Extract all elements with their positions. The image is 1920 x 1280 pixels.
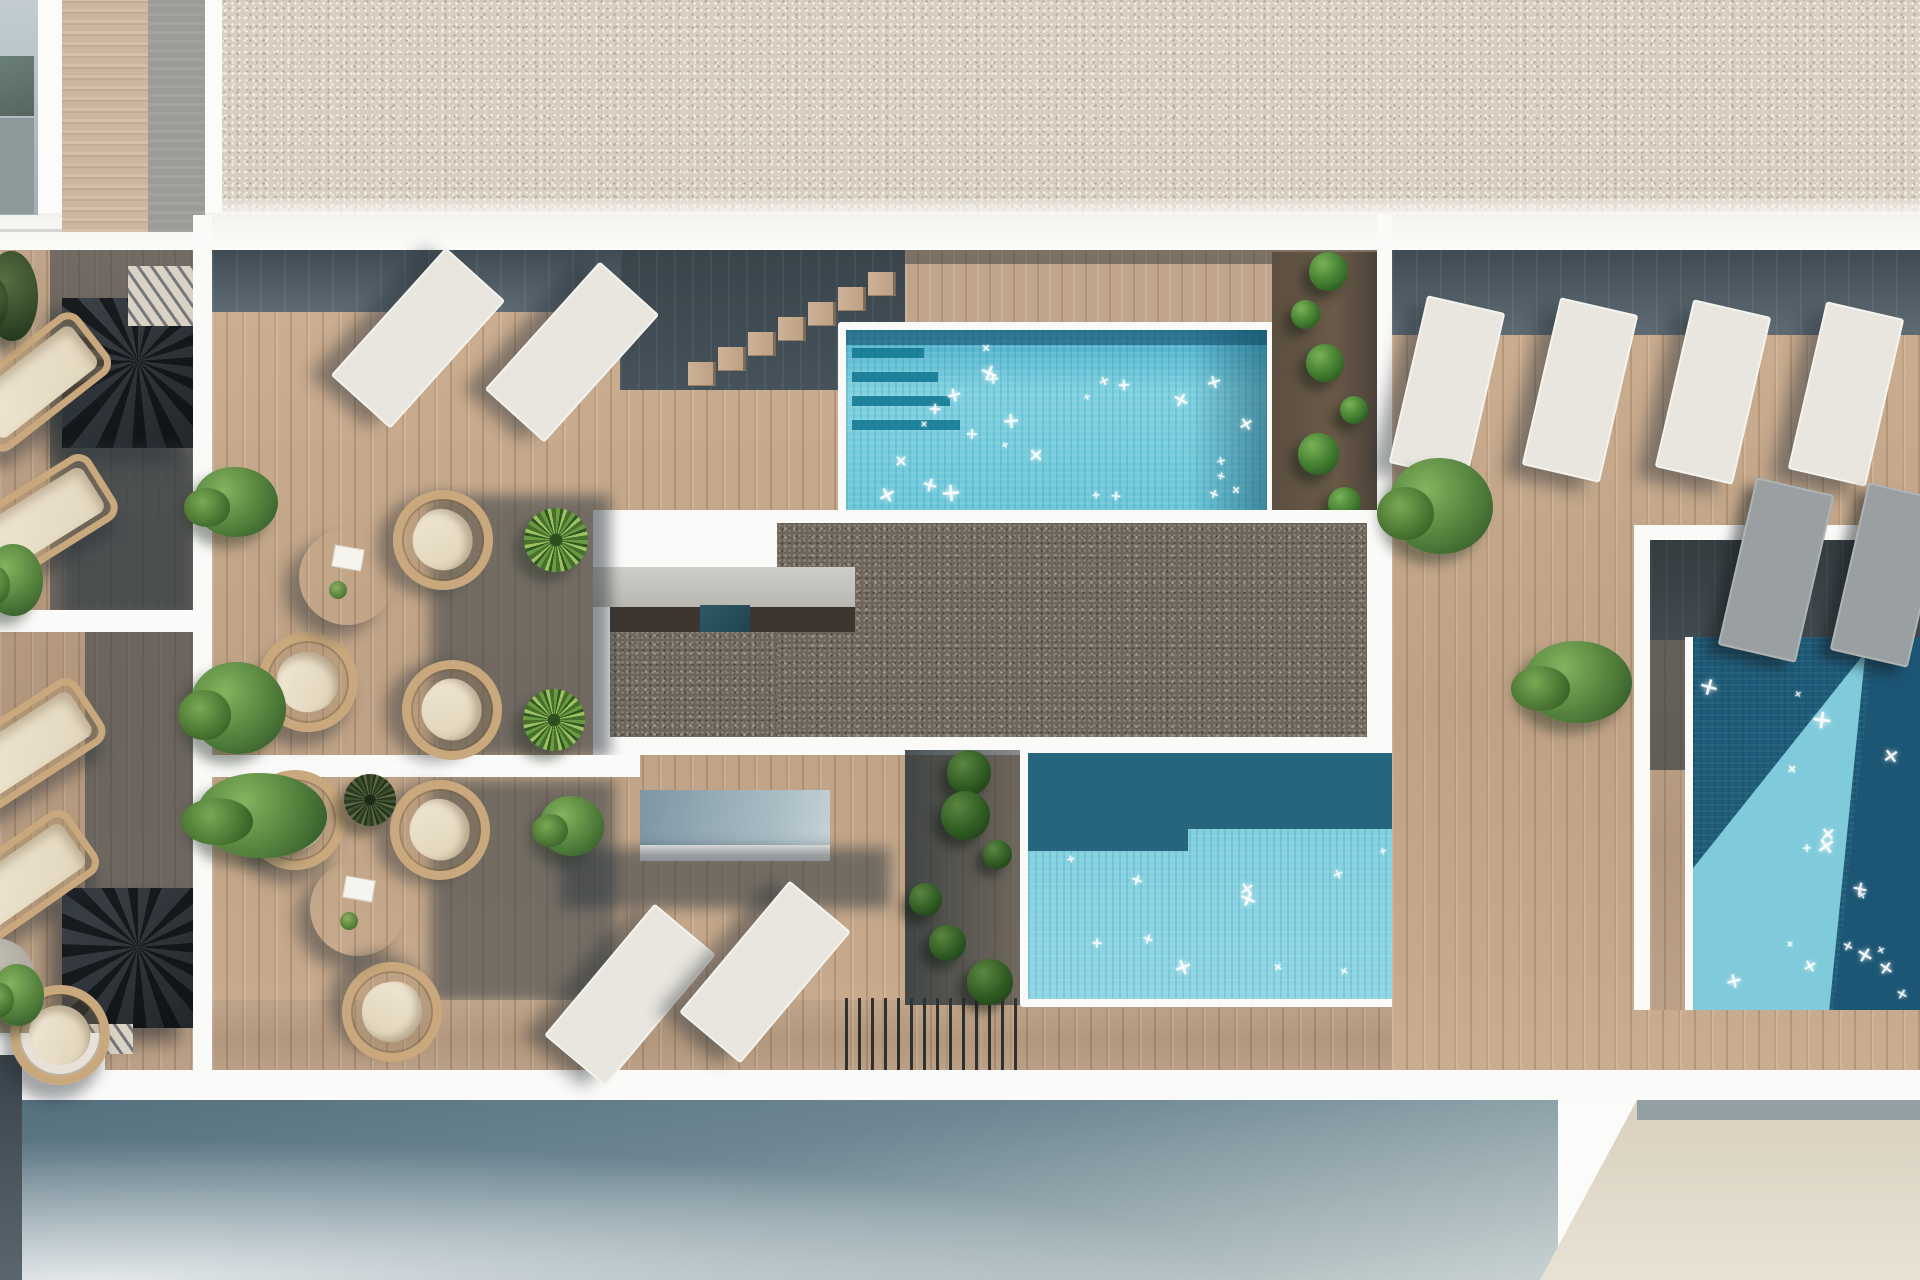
deck-stair-tread <box>748 332 776 356</box>
right-court-border-v <box>1634 525 1650 1010</box>
water-sparkle <box>1067 855 1075 863</box>
water-sparkle <box>1699 678 1719 698</box>
water-sparkle <box>943 484 961 502</box>
upper-pool-step-3 <box>852 396 950 406</box>
skylight-glass <box>700 605 750 632</box>
deck-stair-tread <box>868 272 896 296</box>
water-sparkle <box>1379 847 1387 855</box>
vine-foliage <box>947 750 992 795</box>
water-sparkle <box>1092 938 1102 948</box>
chair-cushion <box>403 500 483 580</box>
plant-room-gravel-wing <box>610 630 777 737</box>
lounger-foot <box>1691 302 1695 319</box>
vine-foliage <box>909 883 942 916</box>
box-bush <box>197 773 327 858</box>
water-sparkle <box>922 477 938 493</box>
water-sparkle <box>1001 441 1009 449</box>
deck-stair-tread <box>838 287 866 311</box>
parapet-band <box>0 213 1920 253</box>
left-unit-shadow-lower <box>85 632 193 890</box>
yucca-plant <box>344 774 396 826</box>
lounger-foot <box>1866 485 1870 502</box>
yucca-plant <box>523 689 585 751</box>
left-unit-divider-wall <box>0 610 193 632</box>
water-sparkle <box>1173 958 1192 977</box>
water-sparkle <box>1004 414 1019 429</box>
water-sparkle <box>1172 390 1191 409</box>
lounger-bar <box>440 250 446 257</box>
plant-room-concrete-strip <box>593 567 855 607</box>
chair-cushion <box>357 977 427 1047</box>
lounger-bar <box>784 883 790 890</box>
roof-panel-gray <box>148 0 205 232</box>
yucca-plant <box>524 508 588 572</box>
water-sparkle <box>1098 375 1110 387</box>
lounger-bar <box>649 906 655 913</box>
water-sparkle <box>987 373 998 384</box>
vine-foliage <box>1306 344 1344 382</box>
box-bush <box>540 796 604 856</box>
water-sparkle <box>1118 379 1129 390</box>
lounger-foot <box>1824 304 1828 321</box>
pebble-roof-field <box>222 0 1920 215</box>
lounger-bar <box>1427 298 1429 307</box>
lounger-bar <box>1693 302 1695 311</box>
lower-pool-shadow-step <box>1028 829 1188 851</box>
vine-foliage <box>983 840 1012 869</box>
round-table <box>310 860 406 956</box>
water-sparkle <box>1339 967 1349 977</box>
upper-pool-vine-planter <box>1272 252 1377 520</box>
left-corner-strip <box>0 1055 22 1280</box>
facade-slate <box>0 1100 1558 1280</box>
water-sparkle <box>1333 868 1345 880</box>
water-sparkle <box>1272 961 1283 972</box>
water-sparkle <box>1142 933 1154 945</box>
facade-beige-shade <box>1637 1100 1920 1120</box>
water-sparkle <box>1083 393 1091 401</box>
chair-cushion <box>410 668 495 753</box>
vine-foliage <box>929 925 966 962</box>
water-sparkle <box>893 452 909 468</box>
facade-panel <box>0 118 34 214</box>
lounger-bar <box>1868 485 1870 494</box>
deck-stair-tread <box>718 347 746 371</box>
upper-pool-step-4 <box>852 420 960 430</box>
water-sparkle <box>1794 690 1803 699</box>
party-wall-left <box>193 215 212 1075</box>
upper-pool-water <box>846 330 1267 510</box>
upper-pool-step-2 <box>852 372 938 382</box>
table-plant <box>340 912 358 930</box>
table-tray <box>331 545 364 572</box>
lounger-foot <box>1558 300 1562 317</box>
facade-window <box>0 56 34 116</box>
vine-foliage <box>1291 300 1320 329</box>
water-sparkle <box>966 429 976 439</box>
table-tray <box>342 876 375 903</box>
water-sparkle <box>1237 880 1255 898</box>
right-pool-side-deck-shade <box>1650 640 1685 770</box>
lounger-bar <box>594 264 600 271</box>
box-bush <box>194 467 278 537</box>
glass-balustrade <box>640 790 830 845</box>
roof-panel-tan <box>62 0 148 232</box>
water-sparkle <box>1026 445 1045 464</box>
vine-foliage <box>967 959 1013 1005</box>
vine-foliage <box>941 791 990 840</box>
table-plant <box>329 581 347 599</box>
water-sparkle <box>1131 874 1144 887</box>
vine-foliage <box>1309 252 1348 291</box>
lounger-bar <box>1826 304 1828 313</box>
upper-pool-vine-shadow <box>1190 330 1267 510</box>
party-wall-right <box>1377 215 1392 525</box>
water-sparkle <box>1111 491 1121 501</box>
deck-stair-tread <box>808 302 836 326</box>
lounger-bar <box>1756 480 1758 489</box>
lower-pool-planter <box>905 750 1022 1005</box>
water-sparkle <box>979 363 999 383</box>
deck-stair-tread <box>778 317 806 341</box>
vine-foliage <box>1340 396 1368 424</box>
stair-landing-upper <box>128 266 193 326</box>
deck-fence <box>845 998 1017 1072</box>
box-bush <box>190 662 286 754</box>
building-bottom-edge <box>0 1070 1920 1102</box>
round-table <box>299 529 395 625</box>
box-bush <box>1524 641 1632 723</box>
rooftop-terrace-render <box>0 0 1920 1280</box>
pebble-roof-fade <box>222 195 1920 215</box>
lounger-bar <box>1560 300 1562 309</box>
vine-foliage <box>1298 433 1339 474</box>
lounger-foot <box>1754 480 1758 497</box>
right-pool-water <box>1693 637 1920 1010</box>
box-bush <box>1389 458 1493 554</box>
deck-stair-tread <box>688 362 716 386</box>
lounger-foot <box>1425 298 1429 315</box>
chair-cushion <box>399 789 481 871</box>
water-sparkle <box>1092 491 1100 499</box>
water-sparkle <box>1239 889 1258 908</box>
plant-room-gravel-main <box>777 523 1367 737</box>
upper-pool-step-1 <box>852 348 924 358</box>
water-sparkle <box>877 485 897 505</box>
